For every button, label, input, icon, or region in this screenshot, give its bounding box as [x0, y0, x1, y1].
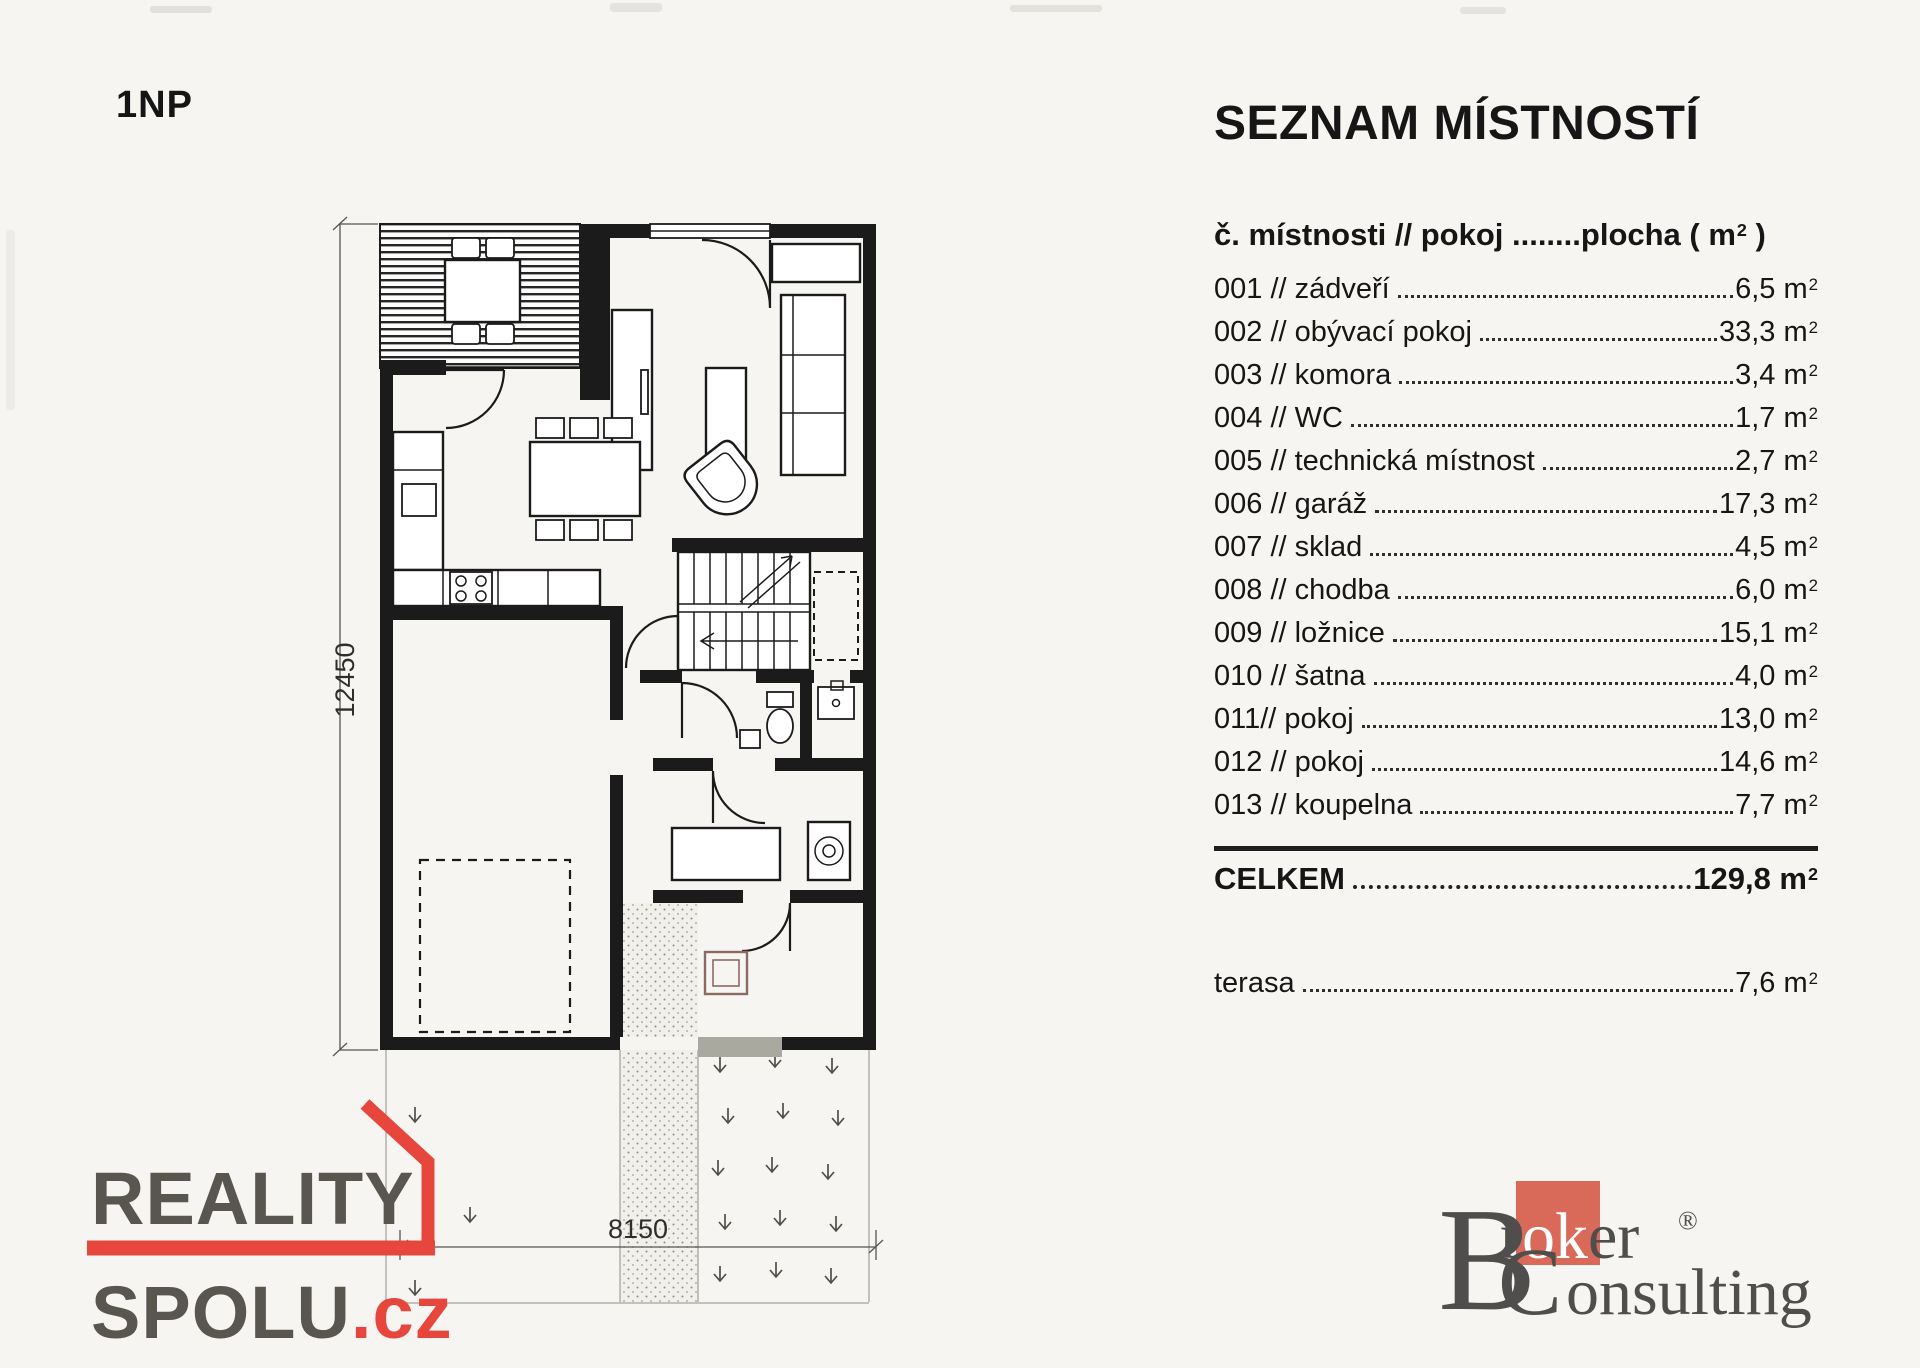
bench: [772, 244, 860, 282]
room-row: 005 // technická místnost 2,7 m2: [1214, 445, 1818, 488]
total-separator: [1214, 846, 1818, 851]
consulting-letter-c: C: [1498, 1234, 1562, 1330]
room-rows: 001 // zádveří 6,5 m2 002 // obývací pok…: [1214, 273, 1818, 832]
scanned-floorplan-page: { "theme":{ "paper":"#f6f5f1","ink":"#1b…: [0, 0, 1920, 1368]
room-row: 012 // pokoj 14,6 m2: [1214, 746, 1818, 789]
room-row: 008 // chodba 6,0 m2: [1214, 574, 1818, 617]
scan-artifact: [1010, 5, 1102, 12]
total-label: CELKEM: [1214, 861, 1345, 897]
room-row: 003 // komora 3,4 m2: [1214, 359, 1818, 402]
registered-trademark-icon: ®: [1678, 1206, 1698, 1236]
dot-leader: [1398, 596, 1733, 599]
dot-leader: [1398, 295, 1733, 298]
staircase: [626, 552, 858, 670]
terrace-area: 7,6 m2: [1735, 967, 1818, 1000]
room-area: 1,7 m2: [1735, 402, 1818, 435]
room-list: SEZNAM MÍSTNOSTÍ č. místnosti // pokoj .…: [1214, 96, 1818, 1010]
wc-door-arc: [682, 683, 737, 738]
room-label: 009 // ložnice: [1214, 617, 1385, 650]
dot-leader: [1362, 725, 1717, 728]
total-area: 129,8 m2: [1693, 861, 1818, 897]
room-area: 6,5 m2: [1735, 273, 1818, 306]
room-row: 002 // obývací pokoj 33,3 m2: [1214, 316, 1818, 359]
stove: [450, 572, 492, 604]
wc: [682, 681, 854, 748]
room-label: 006 // garáž: [1214, 488, 1367, 521]
bench-bed: [672, 828, 780, 880]
room-label: 008 // chodba: [1214, 574, 1390, 607]
dot-leader: [1374, 682, 1734, 685]
room-label: 007 // sklad: [1214, 531, 1362, 564]
consulting-wordmark: onsulting: [1566, 1260, 1812, 1326]
entry-door-arc: [702, 240, 770, 308]
dimension-horizontal-value: 8150: [608, 1214, 668, 1244]
scan-artifact: [1460, 7, 1506, 14]
kitchen-sink: [402, 484, 436, 516]
room-label: 001 // zádveří: [1214, 273, 1390, 306]
stair-door-arc: [626, 616, 678, 668]
room-row: 007 // sklad 4,5 m2: [1214, 531, 1818, 574]
realityspolu-tld: .cz: [351, 1271, 453, 1354]
broker-consulting-logo: B roker ® C onsulting: [1442, 1178, 1920, 1368]
sink: [818, 681, 854, 719]
dot-leader: [1420, 811, 1733, 814]
washing-machine: [808, 822, 850, 880]
room-area: 15,1 m2: [1719, 617, 1818, 650]
room-label: 005 // technická místnost: [1214, 445, 1535, 478]
room-row: 006 // garáž 17,3 m2: [1214, 488, 1818, 531]
room-row: 010 // šatna 4,0 m2: [1214, 660, 1818, 703]
room-row: 013 // koupelna 7,7 m2: [1214, 789, 1818, 832]
dot-leader: [1351, 424, 1733, 427]
dimension-vertical: 12450: [330, 217, 378, 1056]
realityspolu-wordmark-line2: SPOLU.cz: [91, 1270, 453, 1355]
room-label: 003 // komora: [1214, 359, 1391, 392]
dot-leader: [1353, 885, 1691, 889]
scan-artifact: [610, 3, 662, 12]
room-area: 6,0 m2: [1735, 574, 1818, 607]
total-row: CELKEM 129,8 m2: [1214, 861, 1818, 911]
dot-leader: [1399, 381, 1733, 384]
room-label: 002 // obývací pokoj: [1214, 316, 1472, 349]
room-row: 009 // ložnice 15,1 m2: [1214, 617, 1818, 660]
room-area: 7,7 m2: [1735, 789, 1818, 822]
room-label: 011// pokoj: [1214, 703, 1354, 736]
room-area: 4,5 m2: [1735, 531, 1818, 564]
room-label: 004 // WC: [1214, 402, 1343, 435]
room-door-arc: [713, 771, 765, 823]
living-room-sofa: [781, 295, 845, 475]
terrace: [380, 224, 610, 400]
room-list-title: SEZNAM MÍSTNOSTÍ: [1214, 96, 1818, 151]
entry-mat: [698, 1037, 782, 1057]
toilet: [740, 692, 793, 748]
dot-leader: [1375, 510, 1717, 513]
room-row: 004 // WC 1,7 m2: [1214, 402, 1818, 445]
room-area: 3,4 m2: [1735, 359, 1818, 392]
room-area: 17,3 m2: [1719, 488, 1818, 521]
realityspolu-logo: REALITY SPOLU.cz: [75, 1090, 511, 1342]
realityspolu-wordmark-line1: REALITY: [91, 1156, 415, 1241]
dot-leader: [1480, 338, 1717, 341]
room-label: 013 // koupelna: [1214, 789, 1412, 822]
dot-leader: [1370, 553, 1733, 556]
dining-table: [530, 418, 640, 540]
floor-drain: [705, 952, 747, 994]
room-row: 001 // zádveří 6,5 m2: [1214, 273, 1818, 316]
dot-leader: [1303, 989, 1733, 992]
room-row: 011// pokoj 13,0 m2: [1214, 703, 1818, 746]
room-area: 33,3 m2: [1719, 316, 1818, 349]
room-label: 012 // pokoj: [1214, 746, 1364, 779]
garage-parking: [420, 860, 570, 1032]
porch-door-arc: [742, 903, 790, 951]
terrace-label: terasa: [1214, 967, 1295, 1000]
lower-rooms: [672, 771, 850, 1057]
dot-leader: [1543, 467, 1733, 470]
room-label: 010 // šatna: [1214, 660, 1366, 693]
room-area: 4,0 m2: [1735, 660, 1818, 693]
scan-artifact: [150, 6, 212, 13]
room-list-header: č. místnosti // pokoj ........plocha ( m…: [1214, 217, 1818, 253]
dot-leader: [1393, 639, 1717, 642]
room-area: 13,0 m2: [1719, 703, 1818, 736]
scan-artifact: [6, 230, 15, 410]
dot-leader: [1372, 768, 1717, 771]
living-room: [612, 244, 860, 526]
armchair: [681, 437, 769, 526]
floor-label: 1NP: [116, 84, 193, 127]
terrace-row: terasa 7,6 m2: [1214, 967, 1818, 1010]
room-area: 14,6 m2: [1719, 746, 1818, 779]
room-area: 2,7 m2: [1735, 445, 1818, 478]
dimension-vertical-value: 12450: [330, 642, 360, 717]
kitchen-door-arc: [446, 370, 504, 428]
